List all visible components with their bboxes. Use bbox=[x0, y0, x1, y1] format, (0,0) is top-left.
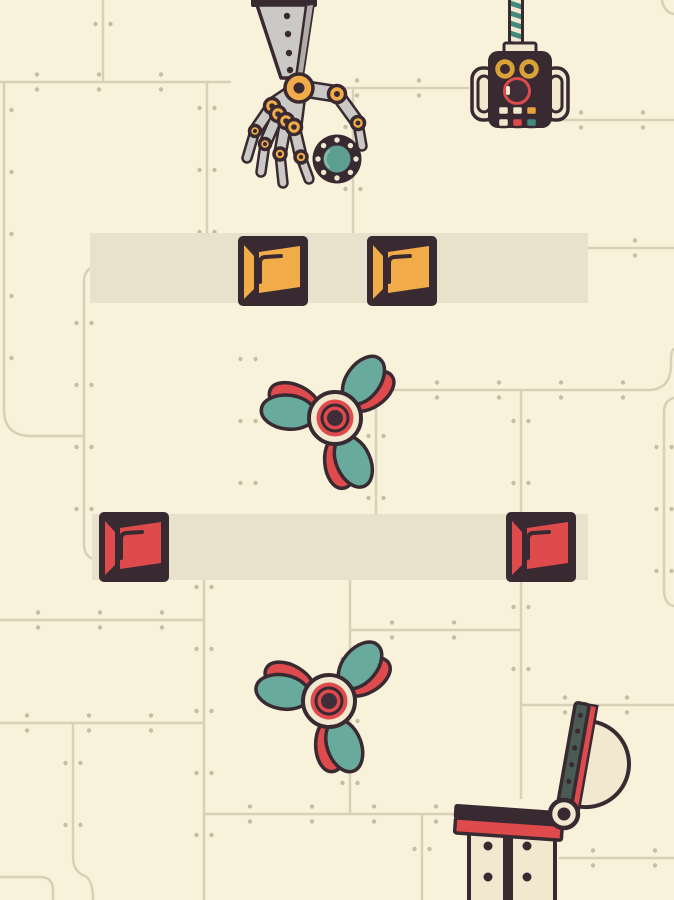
yellow-block-left[interactable] bbox=[238, 236, 308, 306]
ball-porthole bbox=[324, 146, 351, 173]
game-screen bbox=[0, 0, 674, 900]
yellow-block-right[interactable] bbox=[367, 236, 437, 306]
slide-track-top bbox=[90, 233, 588, 303]
red-block-right[interactable] bbox=[506, 512, 576, 582]
gear-ball[interactable] bbox=[313, 135, 362, 184]
red-block-left[interactable] bbox=[99, 512, 169, 582]
